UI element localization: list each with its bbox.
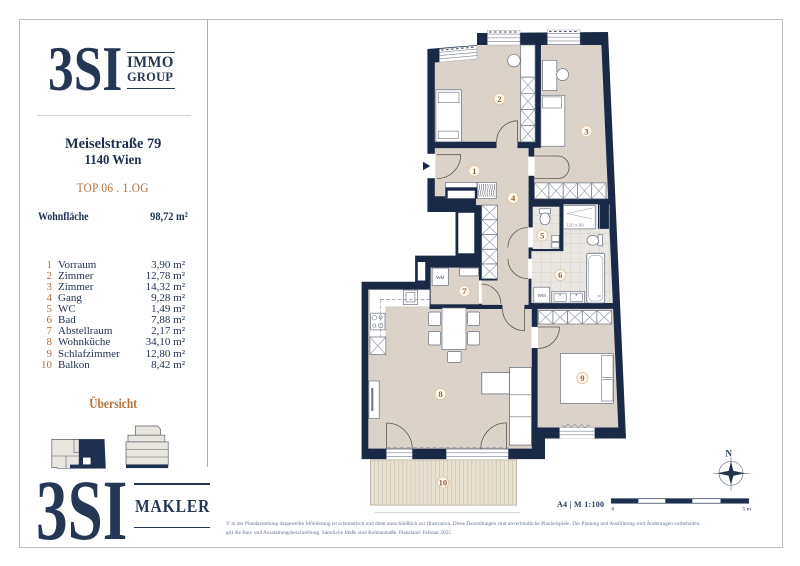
svg-text:10: 10 — [439, 478, 448, 488]
svg-text:120 x 90: 120 x 90 — [566, 223, 584, 228]
svg-text:7: 7 — [462, 286, 467, 296]
svg-text:A4 | M 1:100: A4 | M 1:100 — [557, 500, 604, 509]
svg-text:9: 9 — [580, 373, 584, 383]
svg-text:5: 5 — [540, 231, 544, 241]
svg-text:WM: WM — [538, 293, 546, 298]
svg-text:2: 2 — [497, 94, 501, 104]
svg-text:N: N — [726, 449, 733, 459]
svg-text:WM: WM — [436, 275, 444, 280]
svg-text:5 m: 5 m — [743, 507, 752, 513]
svg-text:8: 8 — [438, 389, 442, 399]
svg-text:4: 4 — [511, 193, 516, 203]
svg-text:6: 6 — [558, 270, 562, 280]
svg-text:0: 0 — [612, 507, 615, 513]
svg-text:1: 1 — [472, 166, 476, 176]
svg-text:3: 3 — [584, 126, 588, 136]
